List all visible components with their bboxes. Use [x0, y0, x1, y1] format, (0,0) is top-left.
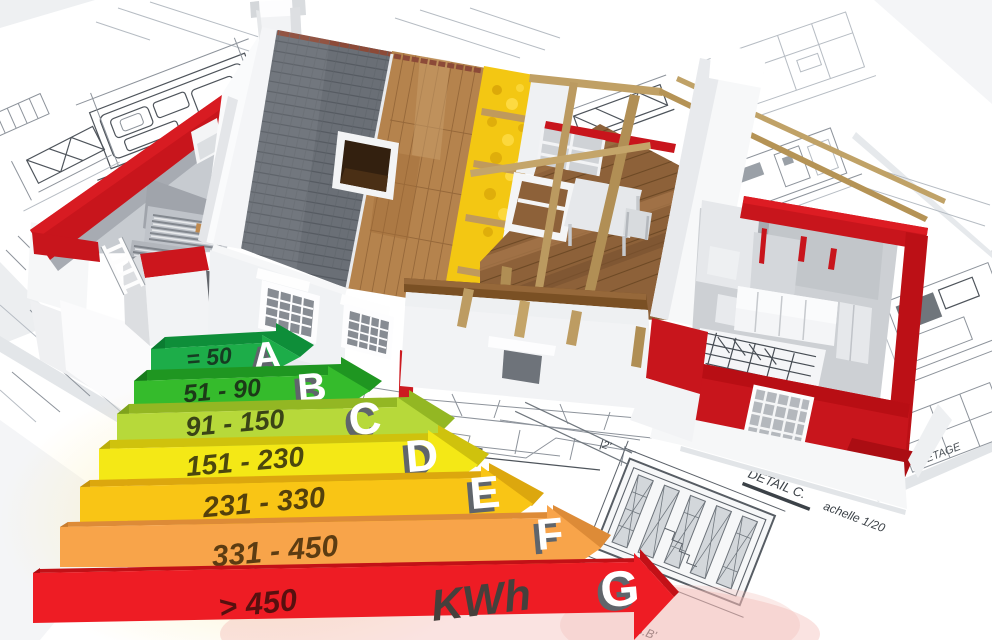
svg-text:F: F — [534, 509, 565, 560]
svg-text:G: G — [598, 559, 642, 618]
svg-text:E: E — [468, 466, 502, 519]
svg-text:= 50: = 50 — [185, 342, 233, 372]
